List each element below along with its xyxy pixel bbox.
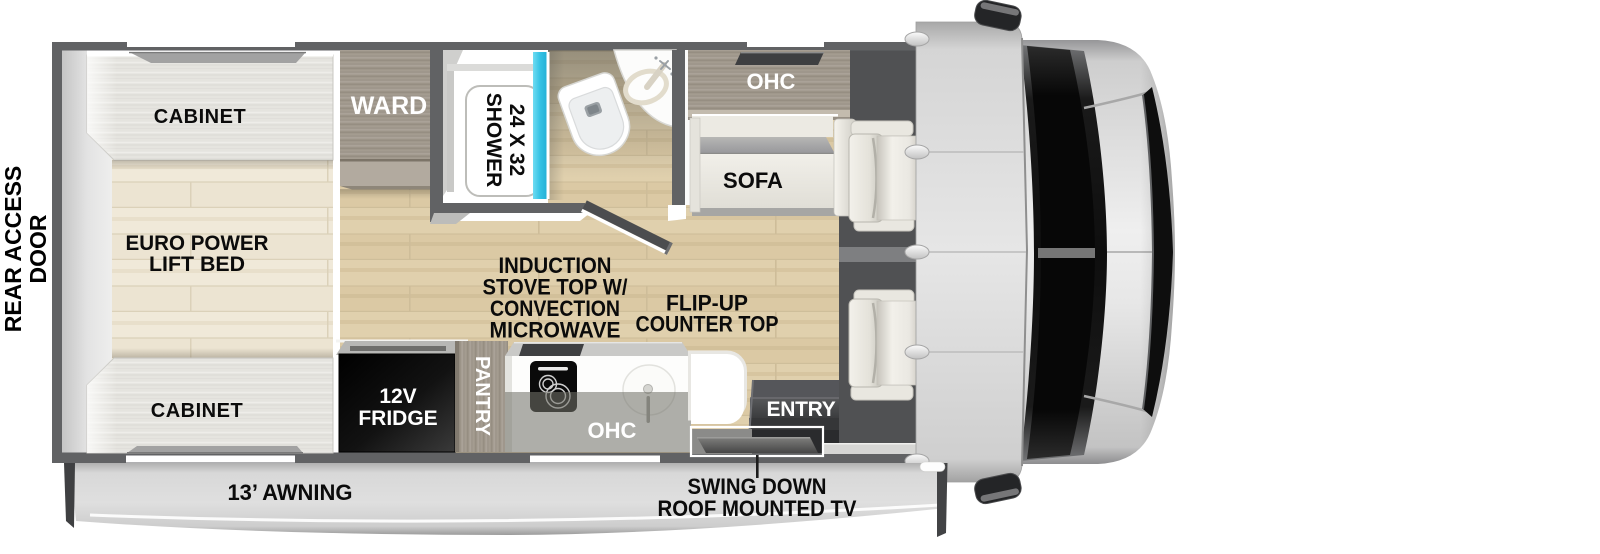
svg-text:ENTRY: ENTRY xyxy=(767,398,836,421)
svg-text:REAR ACCESS: REAR ACCESS xyxy=(0,166,26,333)
svg-text:SOFA: SOFA xyxy=(723,168,783,193)
svg-text:CABINET: CABINET xyxy=(151,400,243,422)
svg-text:FRIDGE: FRIDGE xyxy=(358,407,437,430)
svg-text:ROOF MOUNTED TV: ROOF MOUNTED TV xyxy=(658,496,857,521)
svg-text:12V: 12V xyxy=(379,385,416,408)
svg-text:MICROWAVE: MICROWAVE xyxy=(490,318,621,343)
svg-text:DOOR: DOOR xyxy=(25,214,51,283)
svg-text:24 X 32: 24 X 32 xyxy=(505,104,528,176)
svg-text:OHC: OHC xyxy=(747,69,796,94)
svg-text:WARD: WARD xyxy=(351,92,427,120)
svg-text:OHC: OHC xyxy=(588,418,637,443)
svg-text:LIFT BED: LIFT BED xyxy=(149,252,245,276)
svg-text:CABINET: CABINET xyxy=(154,106,246,128)
svg-text:PANTRY: PANTRY xyxy=(471,356,493,437)
svg-text:COUNTER TOP: COUNTER TOP xyxy=(636,312,779,337)
svg-text:13’ AWNING: 13’ AWNING xyxy=(227,480,352,505)
svg-text:SHOWER: SHOWER xyxy=(482,93,505,188)
